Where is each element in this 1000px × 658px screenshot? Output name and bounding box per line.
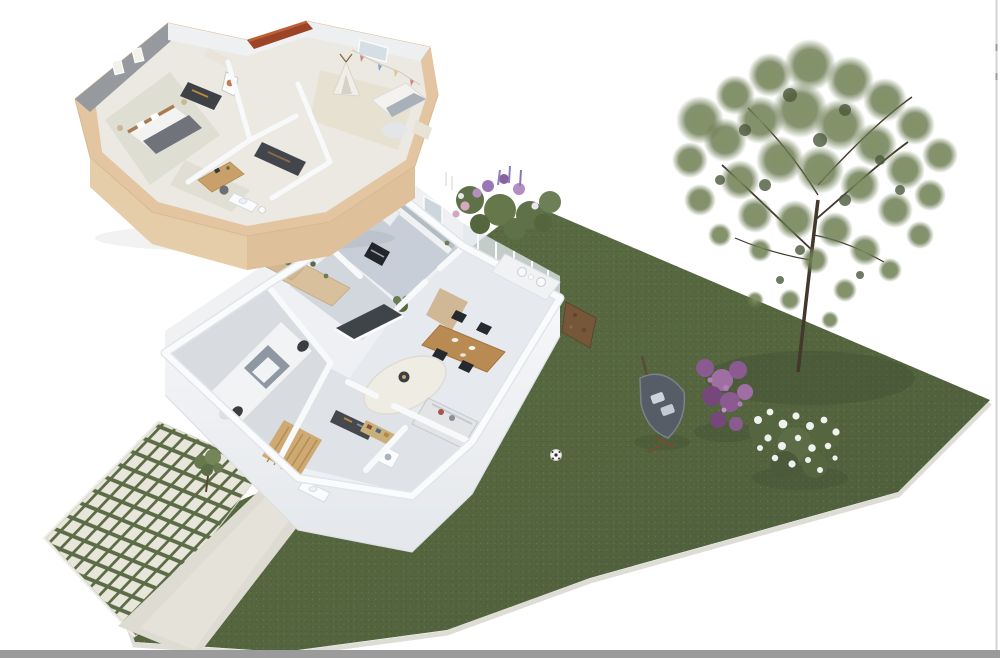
terrace-table <box>528 274 533 279</box>
nightstand <box>117 125 123 131</box>
coffee-table-tray <box>402 375 406 379</box>
terrace-chair <box>518 268 527 277</box>
pink-bloom <box>452 210 459 217</box>
plate <box>460 353 466 357</box>
upper-floor <box>75 21 438 270</box>
toilet <box>259 207 266 214</box>
desk-chair <box>219 185 228 194</box>
floorplan-svg: 3D isometric rendering of a two-storey h… <box>0 0 1000 658</box>
white-bush-shadow <box>752 466 848 490</box>
lavender-bloom <box>513 183 525 195</box>
pink-bloom <box>460 201 469 210</box>
purple-bush-shadow <box>694 422 758 442</box>
throw-pillow <box>449 415 455 421</box>
plate <box>452 338 459 342</box>
terrace-chair <box>537 278 546 287</box>
bottom-edge-bar <box>0 650 1000 658</box>
right-edge-line <box>996 0 998 650</box>
plate <box>469 346 476 350</box>
soccer-ball <box>551 450 562 461</box>
lavender-bloom <box>482 180 494 192</box>
floorplan-render: 3D isometric rendering of a two-storey h… <box>0 0 1000 658</box>
kitchen-plant <box>445 241 450 246</box>
sink <box>309 487 317 492</box>
right-edge-tick <box>996 73 998 80</box>
white-bloom <box>458 193 464 199</box>
washer-door <box>385 454 392 461</box>
throw-pillow <box>438 409 444 415</box>
right-edge-tick <box>996 44 998 51</box>
nightstand <box>181 99 187 105</box>
lavender-bloom <box>472 188 481 197</box>
white-bloom <box>531 202 538 209</box>
kid-rug <box>382 122 408 138</box>
sink <box>239 199 247 204</box>
lavender-bloom <box>499 174 509 184</box>
desk-plant <box>226 166 230 170</box>
potted-plant <box>324 274 329 279</box>
